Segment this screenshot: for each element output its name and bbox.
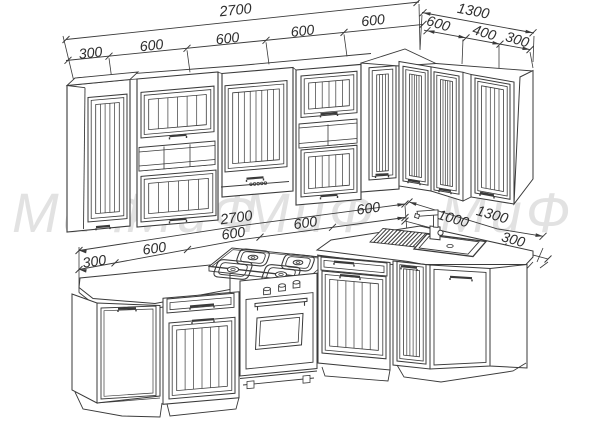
svg-text:600: 600 xyxy=(290,22,315,40)
svg-text:600: 600 xyxy=(215,30,240,48)
svg-text:600: 600 xyxy=(293,214,319,233)
svg-text:600: 600 xyxy=(360,12,385,30)
svg-text:600: 600 xyxy=(139,37,164,55)
svg-text:600: 600 xyxy=(221,225,247,244)
svg-text:600: 600 xyxy=(356,200,382,219)
svg-text:300: 300 xyxy=(82,253,108,272)
svg-text:300: 300 xyxy=(78,44,103,62)
svg-text:600: 600 xyxy=(142,240,168,259)
